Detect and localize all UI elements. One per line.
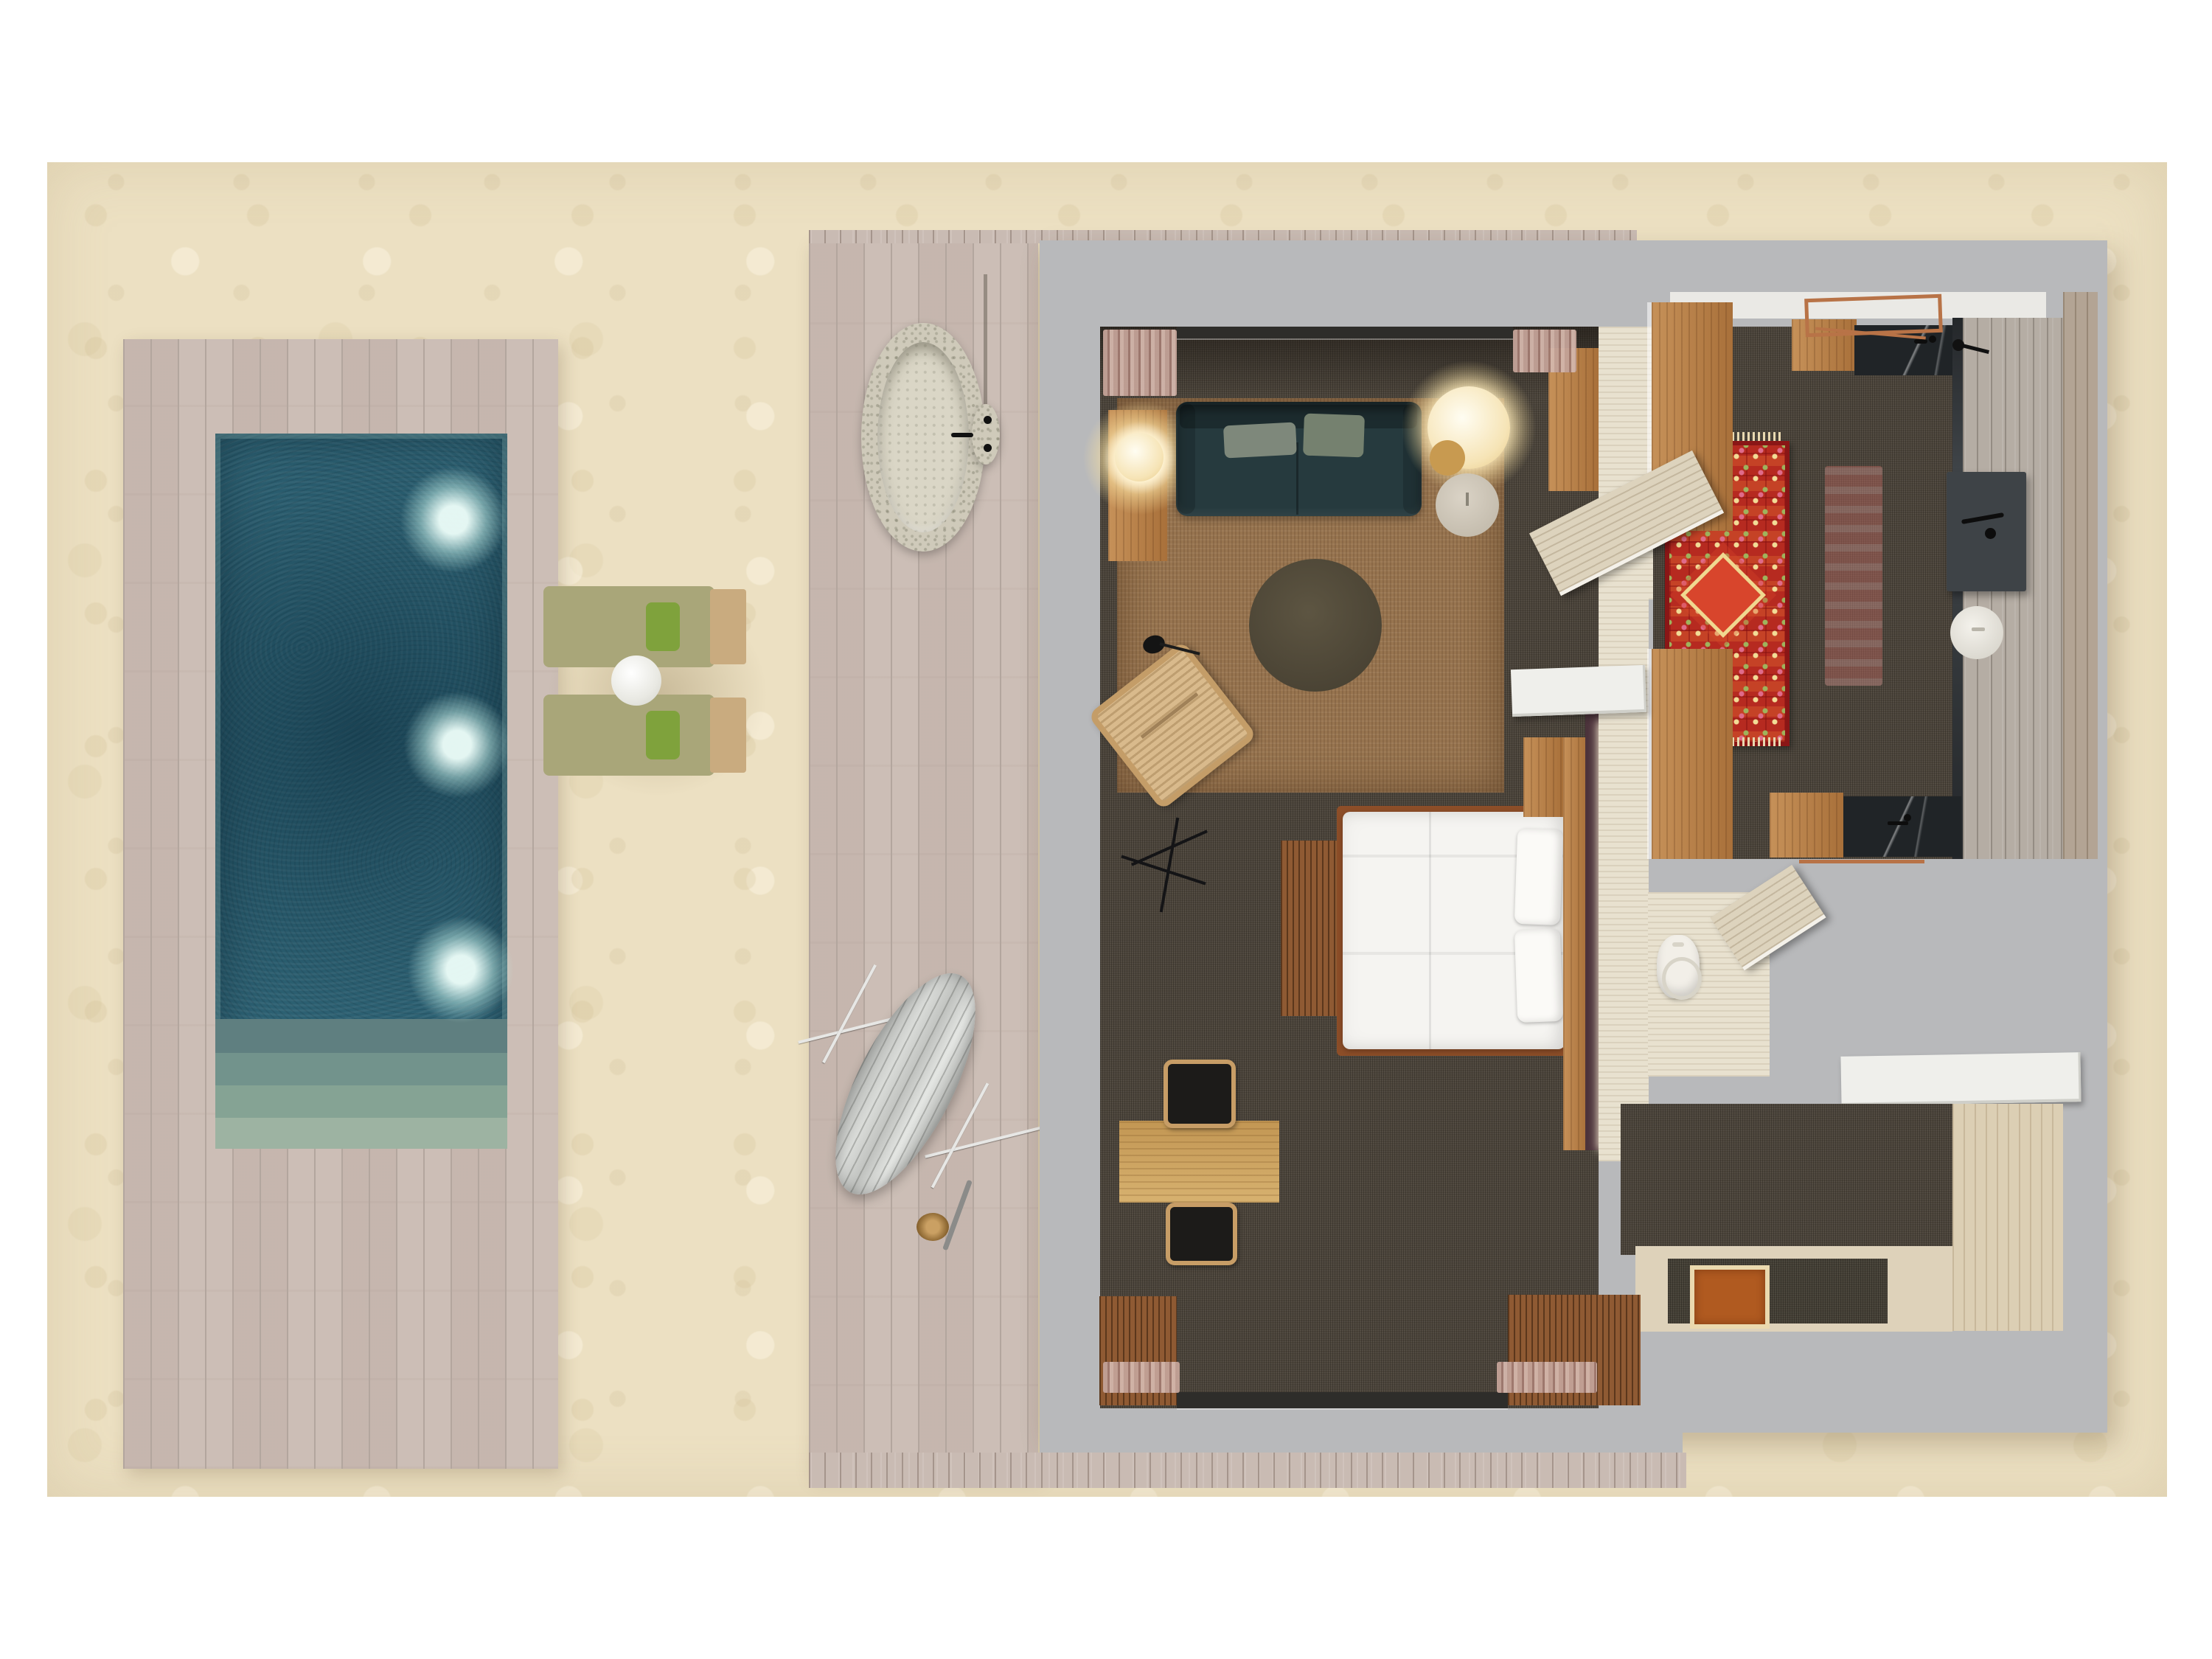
courtyard-deck <box>1952 1104 2063 1331</box>
pool-light-2 <box>402 689 512 800</box>
lounger-side-table <box>611 655 661 706</box>
sun-lounger-1 <box>543 586 714 667</box>
curtain-north-left <box>1103 330 1177 396</box>
pool-light-1 <box>398 465 509 575</box>
sofa-cushion-1 <box>1223 422 1297 458</box>
sofa-seat-divider <box>1296 442 1298 515</box>
headboard-panel <box>1563 737 1587 1150</box>
vanity-south-faucet <box>1888 821 1908 825</box>
umbrella-rope-coil <box>917 1213 949 1241</box>
vanity-south-cabinet <box>1770 793 1843 858</box>
shower-stool <box>1950 606 2003 659</box>
shower-stool-slot <box>1972 627 1985 631</box>
shower-head <box>1952 339 1964 351</box>
bathtub-spout <box>951 433 973 437</box>
sliding-door-track-south <box>1177 1392 1508 1408</box>
vanity-north-knob <box>1929 335 1936 343</box>
headboard-bench <box>1511 665 1646 717</box>
floor-plan-canvas <box>0 0 2212 1659</box>
sofa-cushion-2 <box>1303 414 1365 458</box>
desk <box>1119 1121 1279 1203</box>
pool-step-4 <box>215 1118 507 1149</box>
deck-south-walkway <box>809 1453 1686 1488</box>
pool-light-3 <box>406 914 516 1025</box>
bed-pillow-2 <box>1514 928 1563 1023</box>
round-pouf <box>1249 559 1382 692</box>
bed-bench <box>1281 841 1340 1016</box>
toilet-seat <box>1662 957 1702 1000</box>
round-side-table-stem <box>1466 493 1469 506</box>
wood-side-disc <box>1430 440 1465 476</box>
courtyard-canopy <box>1840 1052 2081 1106</box>
bathtub-knob-2 <box>984 444 992 452</box>
sun-lounger-1-frame <box>710 589 746 664</box>
sun-lounger-1-pillow <box>646 602 680 651</box>
duvet-fold <box>1429 812 1431 1049</box>
bathtub-faucet-panel <box>972 404 1000 465</box>
bedside-shelf <box>1523 737 1563 817</box>
vanity-south-knob <box>1904 814 1911 821</box>
bed-pillow-1 <box>1514 828 1563 925</box>
east-wood-wall <box>2063 292 2098 859</box>
bathtub-water-pipe <box>984 274 987 404</box>
pool-step-2 <box>215 1053 507 1085</box>
bathtub-knob-1 <box>984 416 992 424</box>
curtain-north-right <box>1513 330 1576 372</box>
curtain-south-left <box>1103 1362 1180 1393</box>
sofa-arm-left <box>1178 403 1195 514</box>
vanity-south-counter <box>1843 796 1961 857</box>
sunken-lounge-table <box>1690 1265 1770 1329</box>
wardrobe-lower <box>1652 649 1733 859</box>
sun-lounger-2-pillow <box>646 711 680 759</box>
vanity-north-faucet <box>1914 339 1927 344</box>
desk-chair-north <box>1164 1060 1236 1128</box>
toilet-flush <box>1672 942 1684 947</box>
console-lamp <box>1115 433 1164 481</box>
building-south-wall <box>1040 1408 1683 1454</box>
courtyard-floor <box>1621 1104 1978 1255</box>
desk-chair-south <box>1166 1203 1237 1265</box>
shower-handle-knob <box>1985 528 1996 539</box>
sun-lounger-2-frame <box>710 698 746 773</box>
sliding-door-track-north <box>1177 327 1513 338</box>
sun-lounger-2 <box>543 695 714 776</box>
outdoor-bathtub-basin <box>877 342 969 532</box>
pool-step-3 <box>215 1085 507 1118</box>
sofa-backrest <box>1180 405 1417 428</box>
curtain-south-right <box>1497 1362 1597 1393</box>
faded-rug <box>1825 466 1882 686</box>
copper-towel-rail-s <box>1799 860 1924 863</box>
